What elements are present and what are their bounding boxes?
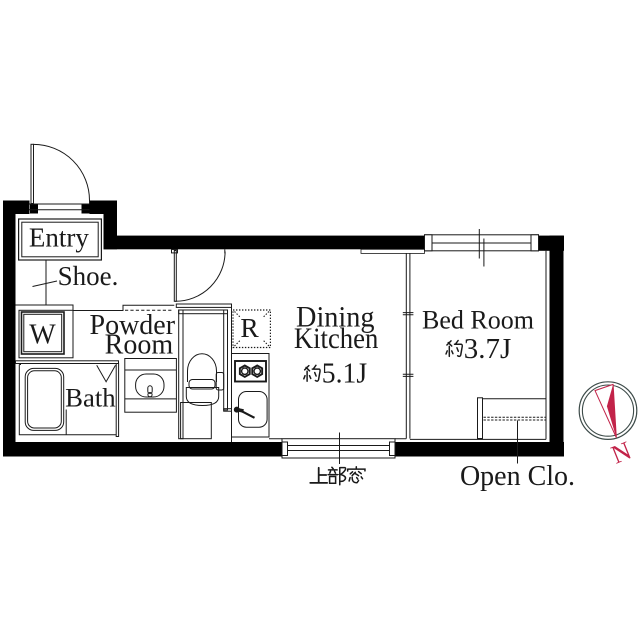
svg-text:3.7J: 3.7J <box>464 334 512 365</box>
svg-text:Bath: Bath <box>65 384 116 413</box>
svg-text:R: R <box>240 312 259 343</box>
svg-text:Shoe.: Shoe. <box>58 261 119 291</box>
svg-text:Entry: Entry <box>29 223 89 253</box>
svg-text:5.1J: 5.1J <box>322 359 367 390</box>
svg-text:Kitchen: Kitchen <box>294 322 379 355</box>
svg-text:Open Clo.: Open Clo. <box>460 461 575 492</box>
svg-text:W: W <box>29 320 56 351</box>
svg-text:Room: Room <box>105 329 174 360</box>
svg-text:Bed Room: Bed Room <box>422 306 534 335</box>
